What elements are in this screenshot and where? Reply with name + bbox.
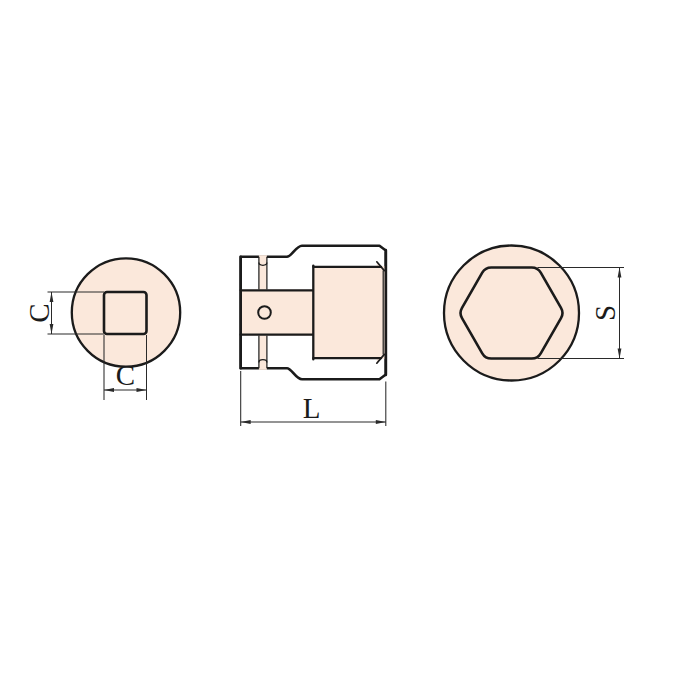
groove-channel-top — [259, 255, 267, 291]
drawing-canvas: C C — [0, 0, 700, 700]
dim-label-length: L — [303, 392, 321, 424]
socket-technical-drawing: C C — [0, 0, 700, 700]
square-drive-end-view: C C — [23, 258, 181, 400]
dim-label-c-vertical: C — [23, 303, 55, 322]
hex-cavity — [313, 266, 385, 359]
cross-section-view: L — [241, 246, 386, 426]
square-hole-fill — [104, 292, 147, 334]
dim-label-across-flats: S — [589, 305, 621, 321]
hex-socket-end-view: S — [444, 246, 624, 381]
square-drive-bore — [241, 290, 314, 336]
groove-channel-bottom — [259, 334, 267, 370]
dim-label-c-horizontal: C — [116, 359, 135, 391]
